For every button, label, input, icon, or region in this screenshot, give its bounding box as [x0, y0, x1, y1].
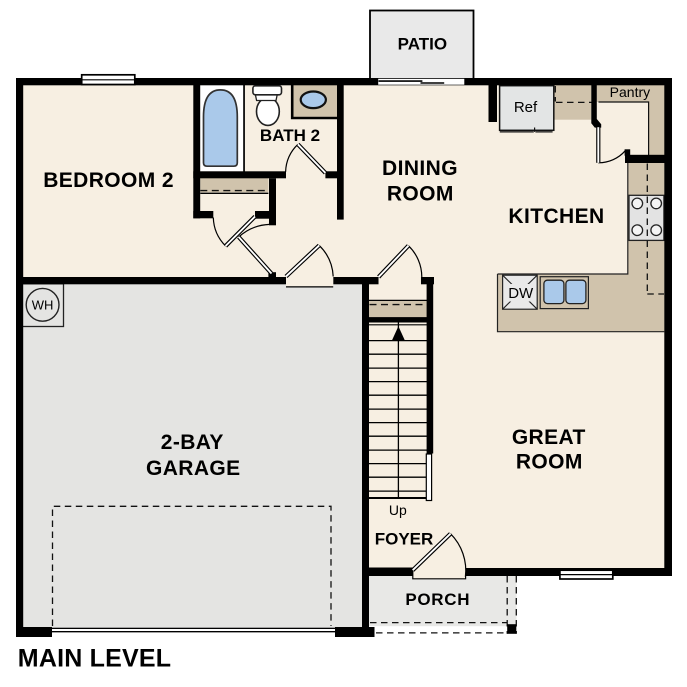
svg-text:BATH 2: BATH 2: [260, 126, 320, 145]
svg-text:PATIO: PATIO: [398, 34, 447, 53]
svg-text:KITCHEN: KITCHEN: [508, 205, 604, 228]
svg-text:2-BAY: 2-BAY: [161, 431, 224, 454]
svg-text:GREAT: GREAT: [512, 426, 586, 449]
svg-text:GARAGE: GARAGE: [146, 457, 241, 480]
svg-text:BEDROOM 2: BEDROOM 2: [43, 169, 174, 192]
svg-text:Up: Up: [389, 502, 407, 518]
svg-text:ROOM: ROOM: [387, 183, 454, 206]
svg-text:PORCH: PORCH: [405, 590, 470, 609]
svg-text:Ref: Ref: [514, 99, 538, 116]
svg-text:WH: WH: [32, 298, 54, 313]
svg-text:DINING: DINING: [382, 157, 458, 180]
svg-text:FOYER: FOYER: [375, 530, 434, 549]
svg-text:ROOM: ROOM: [516, 451, 583, 474]
svg-text:Pantry: Pantry: [610, 84, 650, 100]
svg-text:DW: DW: [508, 285, 534, 302]
svg-text:MAIN LEVEL: MAIN LEVEL: [18, 645, 171, 673]
